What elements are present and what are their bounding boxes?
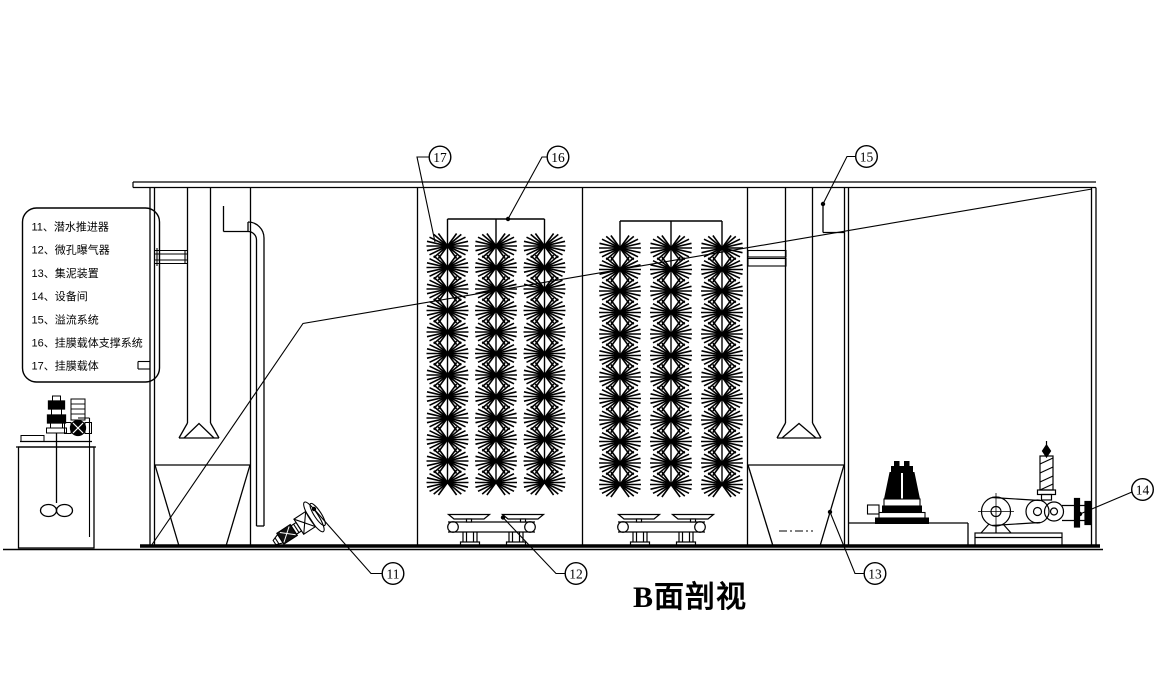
equipment-room: [849, 441, 1092, 546]
leader-dot: [821, 202, 825, 206]
legend-items: 11、潜水推进器12、微孔曝气器13、集泥装置14、设备间15、溢流系统16、挂…: [32, 220, 143, 373]
standby-pump: [868, 462, 929, 524]
leader-dot: [828, 510, 832, 514]
drawing-title: B面剖视: [633, 581, 747, 614]
inlet-elbow-pipe: [224, 206, 265, 526]
section-view-drawing: 11、潜水推进器12、微孔曝气器13、集泥装置14、设备间15、溢流系统16、挂…: [0, 0, 1175, 699]
leader-line: [417, 157, 435, 242]
drawing-sheet: 11、潜水推进器12、微孔曝气器13、集泥装置14、设备间15、溢流系统16、挂…: [0, 0, 1175, 699]
legend-item: 15、溢流系统: [32, 312, 99, 326]
callout-16: 16: [506, 146, 569, 221]
legend-item: 14、设备间: [32, 289, 88, 303]
section-line: [151, 189, 1092, 546]
aerator-assemblies: [448, 515, 714, 546]
callout-14: 14: [1078, 479, 1153, 517]
dosing-tank: [16, 396, 96, 548]
silencer: [1038, 441, 1056, 500]
legend-item: 11、潜水推进器: [32, 220, 109, 234]
callout-number: 15: [860, 149, 874, 164]
mixer: [41, 396, 73, 517]
sludge-hopper-right: [748, 465, 844, 546]
legend-item: 17、挂膜载体: [32, 359, 99, 373]
callout-number: 17: [433, 150, 447, 165]
roots-blower: [975, 441, 1091, 546]
sludge-hopper-left: [155, 465, 250, 546]
duct-pipe-stub-right: [748, 251, 786, 267]
leader-dot: [1078, 512, 1082, 516]
callout-number: 14: [1136, 482, 1150, 497]
wall-stub-outside: [138, 362, 150, 370]
legend-item: 13、集泥装置: [32, 266, 99, 280]
legend-item: 12、微孔曝气器: [32, 243, 110, 257]
callout-number: 11: [387, 566, 400, 581]
leader-dot: [501, 515, 505, 519]
blower-outlet-pipe: [1062, 499, 1091, 528]
carrier-support-frame: [448, 219, 545, 484]
aerator-assembly: [448, 515, 544, 546]
callout-number: 12: [569, 566, 583, 581]
outlet-duct-right: [748, 188, 821, 438]
callout-17: 17: [417, 146, 451, 242]
tank-top-rail: [133, 182, 1096, 188]
legend-item: 16、挂膜载体支撑系统: [32, 336, 143, 350]
aerator-assembly: [618, 515, 714, 546]
submersible-propeller: [265, 498, 330, 557]
overflow-weir: [823, 204, 845, 233]
leader-dot: [312, 507, 316, 511]
leader-dot: [506, 217, 510, 221]
leader-line: [823, 157, 856, 205]
tank-outline: [133, 182, 1100, 546]
leader-line: [830, 512, 864, 574]
callout-number: 13: [868, 566, 882, 581]
tank-walls: [150, 188, 1096, 547]
callout-number: 16: [551, 150, 565, 165]
biofilm-carrier-assemblies: [427, 219, 744, 497]
equipment-plinth: [849, 523, 969, 546]
